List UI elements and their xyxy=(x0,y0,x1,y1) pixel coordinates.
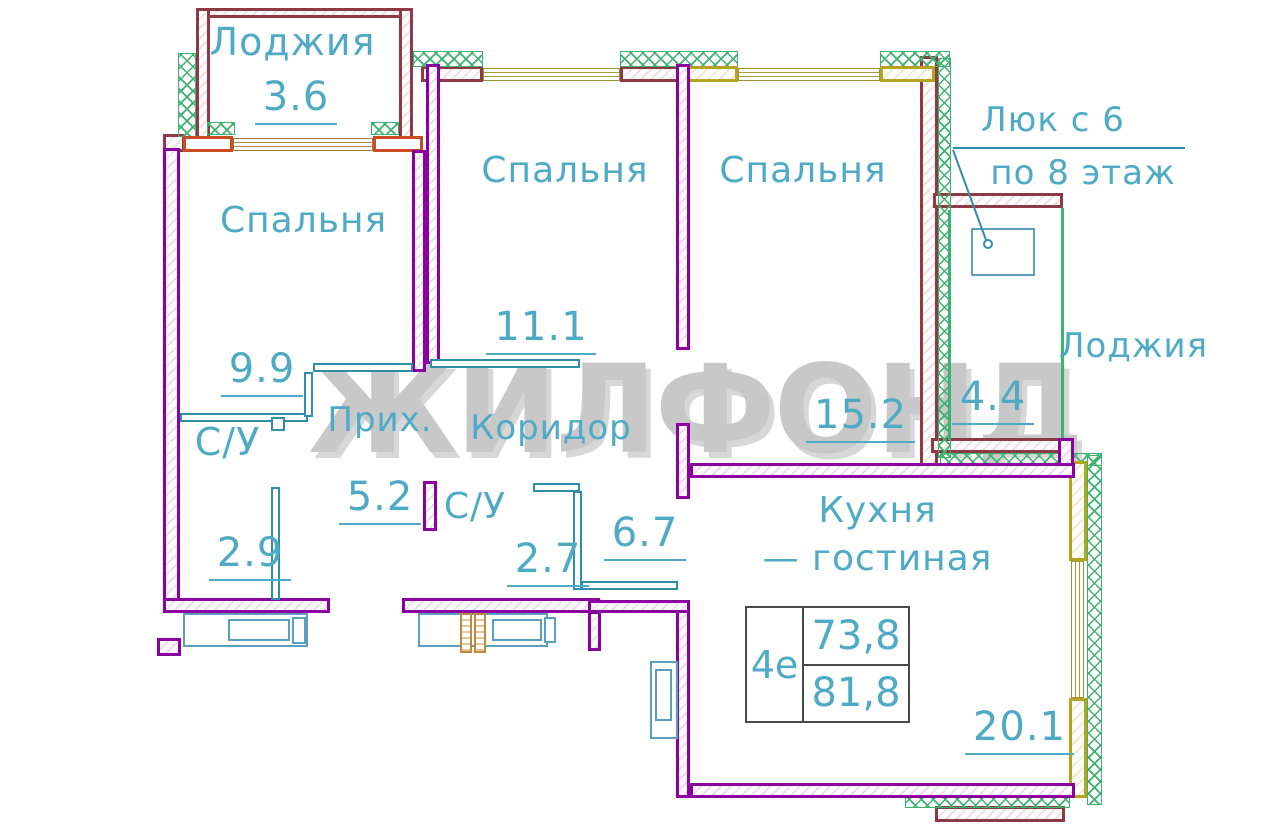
room-label-kitchen-line1: Кухня xyxy=(810,490,945,531)
room-label-hall: Прих. xyxy=(325,400,435,440)
room-area-hall: 5.2 xyxy=(330,474,430,525)
apartment-area-total: 81,8 xyxy=(804,666,908,722)
room-label-corridor: Коридор xyxy=(462,408,640,448)
room-label-bedroom-right: Спальня xyxy=(718,150,888,191)
room-label-kitchen-line2: — гостиная xyxy=(745,538,1010,579)
room-label-loggia-right: Лоджия xyxy=(1056,326,1211,366)
apartment-area-living: 73,8 xyxy=(804,608,908,666)
room-area-bedroom-left: 9.9 xyxy=(212,346,312,397)
room-area-kitchen: 20.1 xyxy=(962,704,1077,755)
floor-plan: ЖИЛФОНД xyxy=(0,0,1280,833)
room-area-corridor: 6.7 xyxy=(595,510,695,561)
room-label-loggia-top: Лоджия xyxy=(205,20,380,64)
apartment-info-table: 4е 73,8 81,8 xyxy=(745,606,910,723)
room-label-bath-left: С/У xyxy=(180,420,275,464)
room-label-bedroom-mid: Спальня xyxy=(475,150,655,191)
apartment-type: 4е xyxy=(747,608,804,721)
room-label-bath-mid: С/У xyxy=(430,486,520,527)
room-area-loggia-right: 4.4 xyxy=(943,374,1043,425)
hatch-note-line2: по 8 этаж xyxy=(958,153,1208,193)
room-area-bedroom-mid: 11.1 xyxy=(486,304,596,355)
room-area-bedroom-right: 15.2 xyxy=(806,392,911,443)
hatch-note-line1: Люк с 6 xyxy=(958,100,1148,140)
room-label-bedroom-left: Спальня xyxy=(220,200,385,241)
room-area-bath-left: 2.9 xyxy=(200,530,300,581)
room-area-bath-mid: 2.7 xyxy=(503,536,593,587)
room-area-loggia-top: 3.6 xyxy=(246,74,346,125)
